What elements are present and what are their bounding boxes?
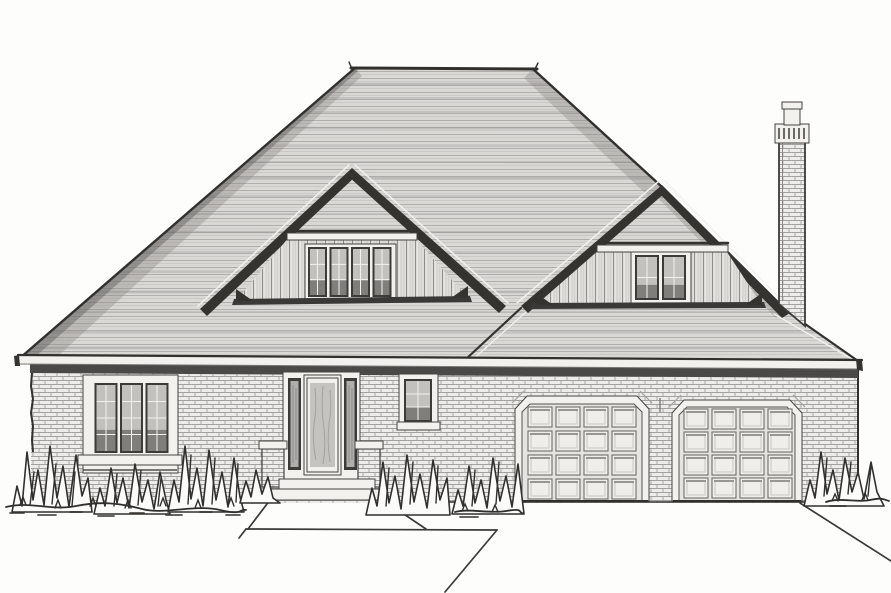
house-elevation-drawing xyxy=(0,0,891,593)
small-window xyxy=(397,374,440,430)
elevation-canvas xyxy=(0,0,891,593)
brick-chimney xyxy=(775,102,809,326)
small-window-sill xyxy=(397,422,440,430)
door-sidelight-right xyxy=(344,378,357,470)
left-dormer-top-trim xyxy=(287,233,417,240)
door-sidelight-left xyxy=(288,378,301,470)
chimney-cap xyxy=(782,102,802,109)
main-roof xyxy=(20,62,860,363)
entry-door xyxy=(304,375,341,475)
driveway-left-edge xyxy=(445,530,497,592)
right-dormer-top-trim xyxy=(597,245,728,252)
chimney-flue xyxy=(784,107,800,125)
front-steps xyxy=(270,479,383,500)
right-dormer-window xyxy=(631,252,691,305)
driveway-right-edge xyxy=(800,503,891,561)
left-dormer-window xyxy=(305,244,396,301)
roof-ridge xyxy=(349,62,538,69)
garage-door-2 xyxy=(672,400,802,501)
walkway-bottom-edge xyxy=(246,529,497,530)
walkway-and-driveway xyxy=(239,500,891,592)
triple-casement-window xyxy=(78,375,182,473)
window-sill xyxy=(78,455,182,465)
garage-door-1 xyxy=(515,396,649,501)
gutter-end-left xyxy=(14,355,20,366)
gutter-end-right xyxy=(856,359,863,371)
walkway-left-edge xyxy=(248,500,270,529)
right-dormer-sill xyxy=(530,302,766,309)
